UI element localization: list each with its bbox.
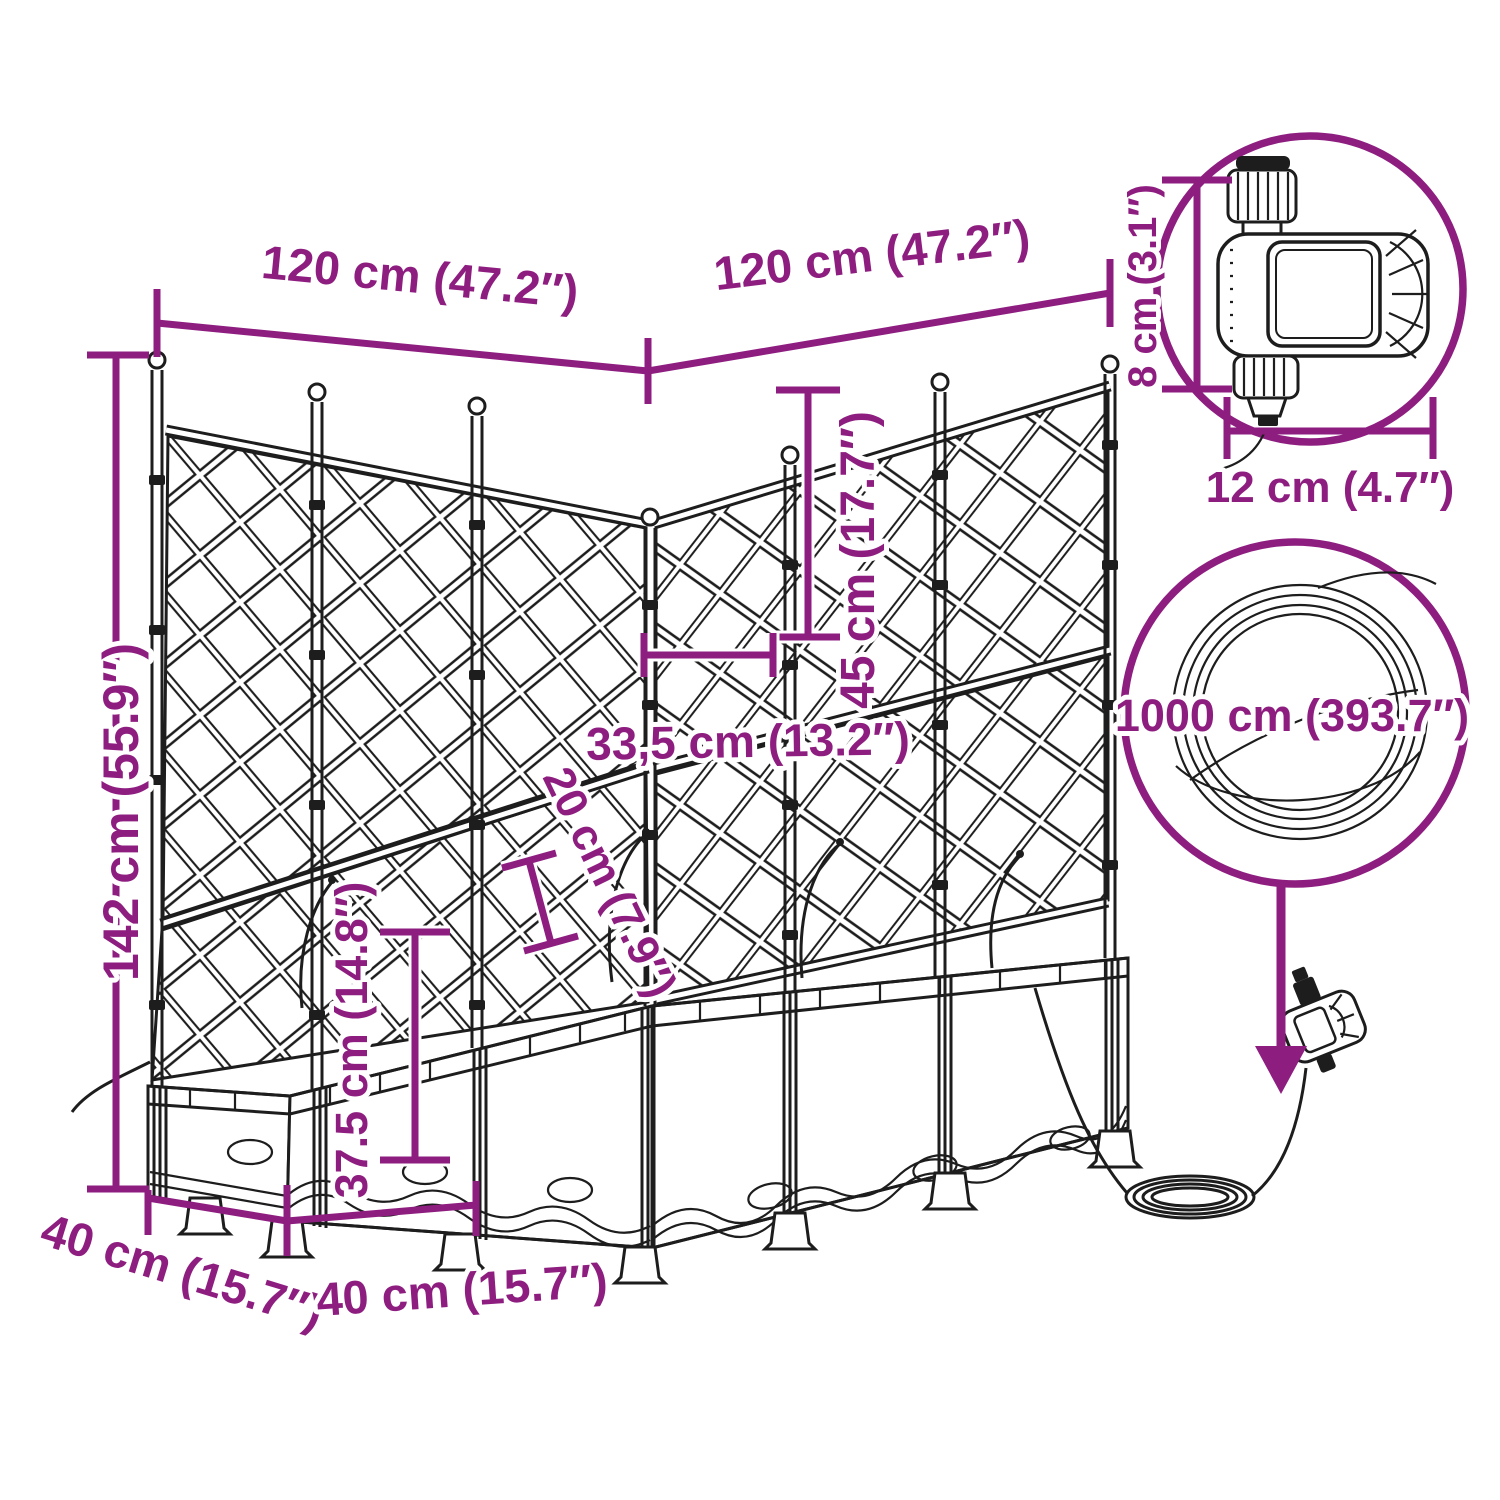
dim-label-hose-length: 1000 cm (393.7″): [1115, 690, 1469, 741]
dim-label-width-right: 120 cm (47.2″): [711, 209, 1033, 300]
timer-detail-circle: [1157, 136, 1463, 470]
dim-label-timer-width: 12 cm (4.7″): [1206, 463, 1455, 512]
dim-label-total-height: 142 cm (55.9″): [93, 643, 149, 981]
dim-label-timer-height: 8 cm (3.1″): [1121, 184, 1165, 388]
hose-coil: [1126, 1176, 1254, 1218]
pole: [1102, 356, 1118, 958]
dim-label-width-left: 120 cm (47.2″): [259, 235, 580, 318]
trellis-left-wing: [152, 430, 648, 1080]
dim-label-box-height: 37.5 cm (14.8″): [326, 882, 377, 1199]
planter-line-art: [72, 352, 1376, 1283]
dim-label-trellis-height: 45 cm (17.7″): [832, 411, 885, 709]
diagram-canvas: 120 cm (47.2″) 120 cm (47.2″) 8 cm (3.1″…: [0, 0, 1500, 1500]
watering-timer-large: [1216, 156, 1428, 470]
pole: [149, 352, 165, 1086]
dim-label-panel-width: 33,5 cm (13.2″): [586, 712, 911, 770]
dim-label-front-width: 40 cm (15.7″): [315, 1253, 610, 1326]
dimension-diagram: 120 cm (47.2″) 120 cm (47.2″) 8 cm (3.1″…: [0, 0, 1500, 1500]
